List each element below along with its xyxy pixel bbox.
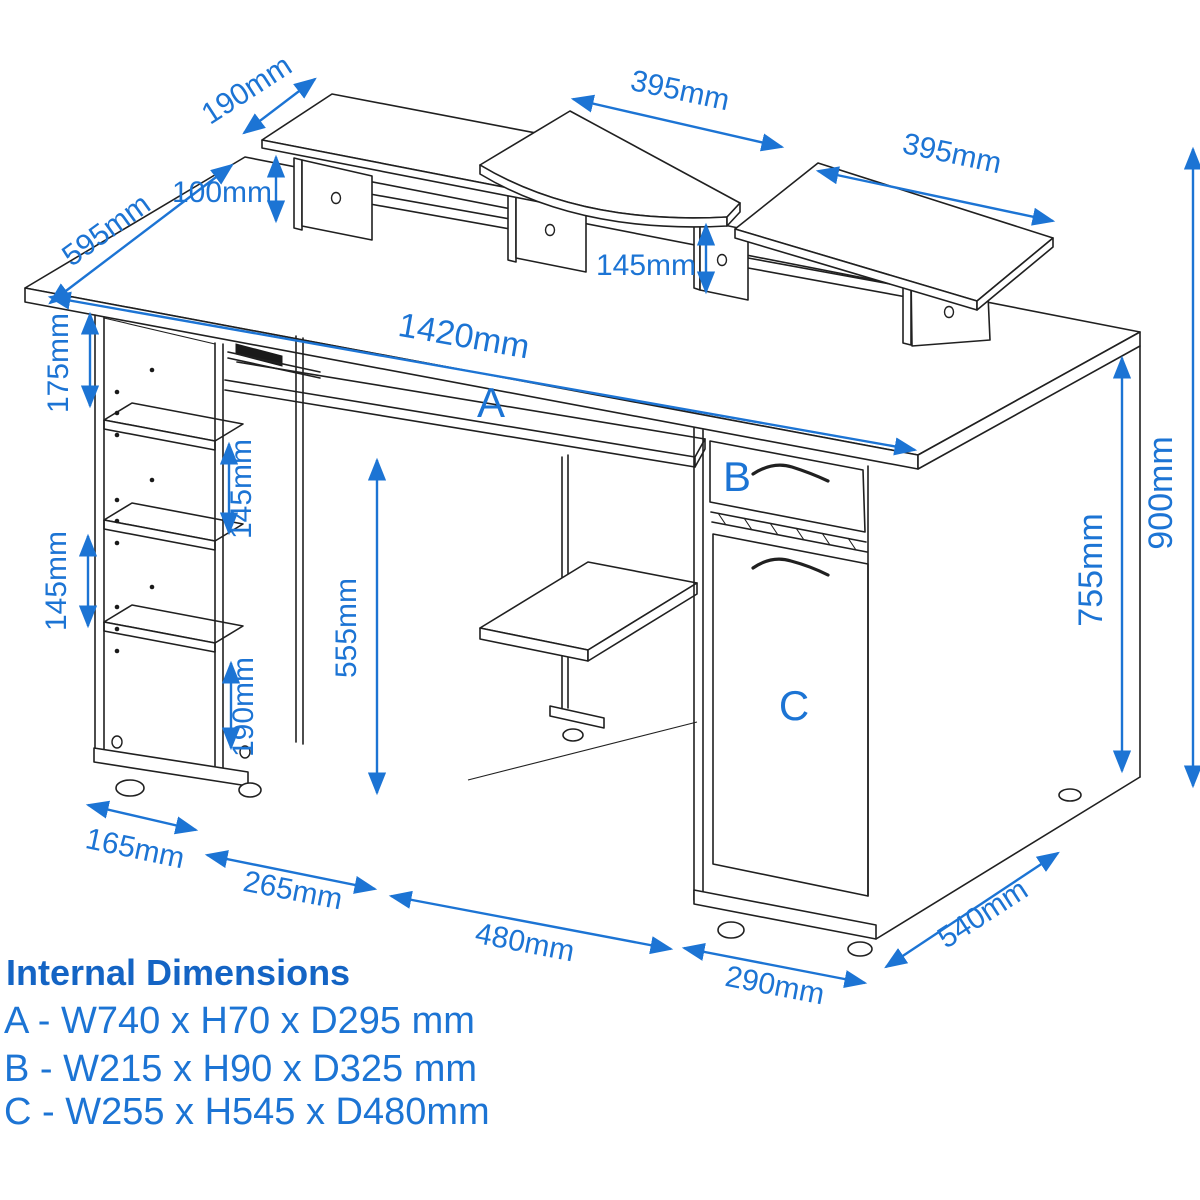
zone-label-c: C — [779, 682, 809, 729]
internal-dimensions-heading: Internal Dimensions — [6, 952, 350, 993]
dim-label-left-bay-depth: 165mm — [83, 822, 188, 875]
dim-label-pedestal-width: 290mm — [723, 960, 828, 1011]
internal-dimensions-row-a: A - W740 x H70 x D295 mm — [4, 1000, 475, 1042]
dim-label-cpu-bay-height: 555mm — [330, 578, 363, 678]
dim-label-left-shelf-gap: 145mm — [40, 531, 73, 631]
dim-label-base-depth: 540mm — [932, 873, 1034, 955]
dim-label-inner-gap: 145mm — [225, 439, 258, 539]
right-pedestal-base — [694, 890, 876, 956]
bottom-stretcher — [550, 706, 604, 741]
internal-dimensions-row-b: B - W215 x H90 x D325 mm — [4, 1048, 477, 1090]
internal-dimensions-row-c: C - W255 x H545 x D480mm — [4, 1091, 490, 1133]
dim-label-monitor-shelf-width: 395mm — [628, 64, 733, 117]
dim-label-bottom-gap: 190mm — [227, 657, 260, 757]
dim-label-under-desk-height: 755mm — [1072, 513, 1110, 626]
desk-dimension-diagram: 190mm 595mm 100mm 395mm 395mm 145mm 1420… — [0, 0, 1200, 1200]
dim-label-right-shelf-width: 395mm — [900, 127, 1005, 180]
dim-label-shelf-riser-height: 145mm — [596, 249, 696, 282]
zone-label-a: A — [477, 379, 505, 426]
center-section — [468, 455, 697, 780]
dim-label-center-bay-width: 480mm — [473, 917, 578, 968]
dim-label-top-shelf-depth: 190mm — [196, 49, 298, 131]
zone-label-b: B — [723, 453, 751, 500]
dim-label-top-gap: 175mm — [42, 313, 75, 413]
diagram-canvas: 190mm 595mm 100mm 395mm 395mm 145mm 1420… — [0, 0, 1200, 1200]
internal-dimensions-block: Internal Dimensions A - W740 x H70 x D29… — [4, 952, 490, 1133]
dim-label-total-height: 900mm — [1142, 436, 1180, 549]
dim-label-left-riser-height: 100mm — [172, 176, 272, 209]
middle-shelf — [480, 562, 697, 661]
left-column-shelves — [104, 403, 243, 652]
